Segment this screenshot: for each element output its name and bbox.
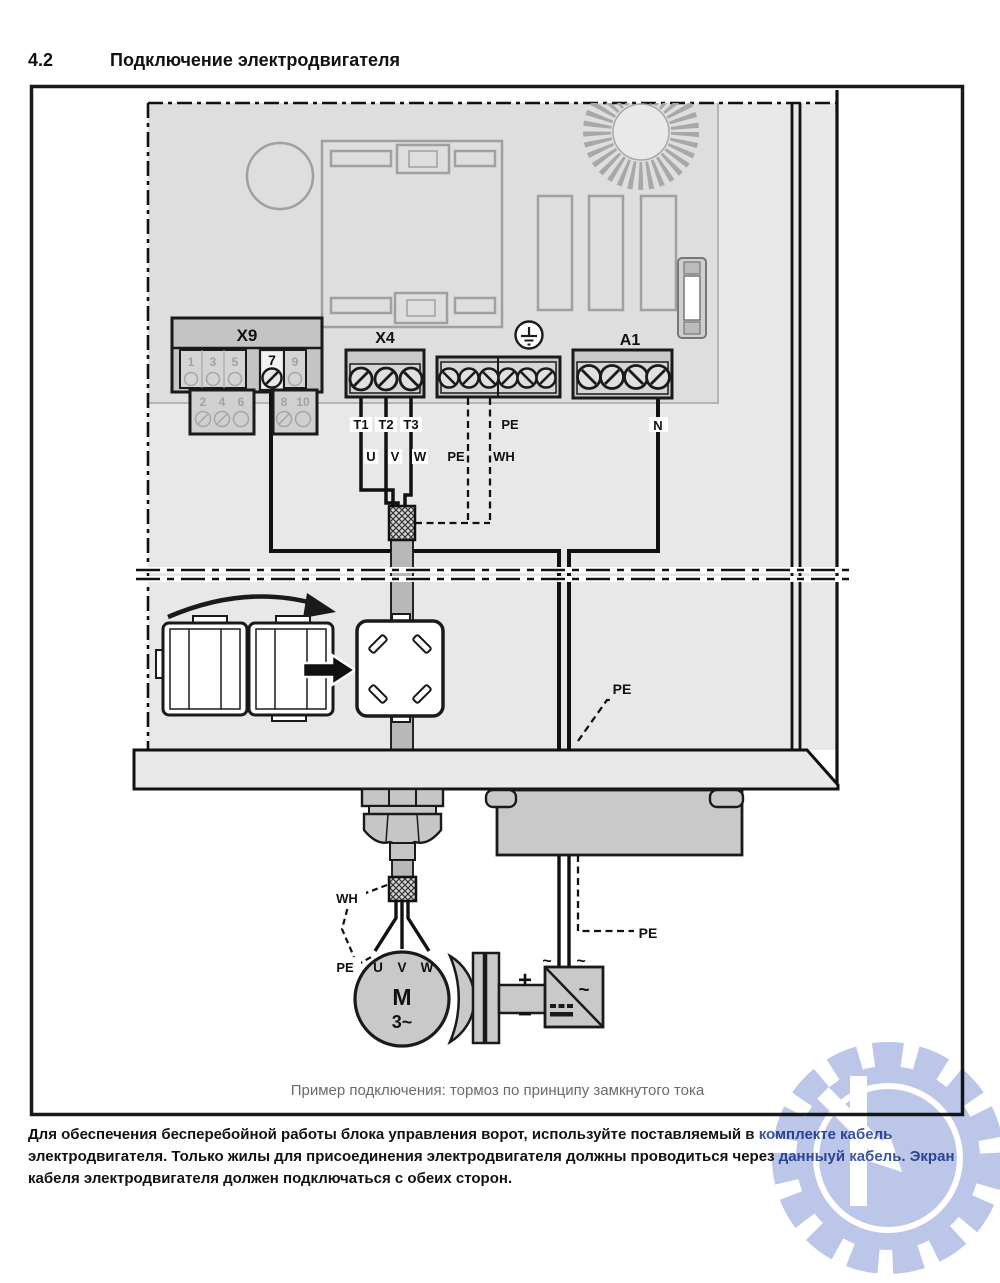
note-line-3-text: кабеля электродвигателя должен подключат… bbox=[28, 1170, 512, 1187]
clamp-closed bbox=[357, 614, 443, 722]
label-wh-row2: WH bbox=[493, 449, 515, 464]
label-t3: T3 bbox=[403, 417, 418, 432]
note-line-1-text: Для обеспечения бесперебойной работы бло… bbox=[28, 1126, 759, 1143]
note-line-2-highlight: данныуй кабель. Экран bbox=[779, 1148, 955, 1165]
ground-symbol-icon bbox=[516, 322, 543, 349]
fuse-holder-icon bbox=[678, 258, 706, 338]
label-pe-lower-right: PE bbox=[639, 925, 658, 941]
x9-terminal-3: 3 bbox=[210, 355, 217, 369]
mounting-box bbox=[486, 790, 743, 855]
cable-shield-upper bbox=[389, 506, 415, 540]
note-line-1-highlight: комплекте кабель bbox=[759, 1126, 893, 1143]
x9-terminal-7: 7 bbox=[268, 352, 276, 368]
motor-u: U bbox=[373, 960, 383, 975]
x9-terminal-10: 10 bbox=[296, 395, 310, 409]
enclosure-bottom-wall bbox=[134, 750, 838, 789]
label-u: U bbox=[366, 449, 375, 464]
label-plus: + bbox=[518, 967, 532, 994]
motor-w: W bbox=[421, 960, 434, 975]
label-w: W bbox=[414, 449, 427, 464]
x9-terminal-1: 1 bbox=[188, 355, 195, 369]
label-pe-row1: PE bbox=[501, 417, 519, 432]
label-pe-row2: PE bbox=[447, 449, 465, 464]
label-pe-motor: PE bbox=[336, 960, 354, 975]
section-number: 4.2 bbox=[28, 50, 110, 71]
label-pe-mid: PE bbox=[613, 681, 632, 697]
x9-terminal-2: 2 bbox=[200, 395, 207, 409]
motor-phase: 3~ bbox=[392, 1012, 413, 1032]
figure-caption: Пример подключения: тормоз по принципу з… bbox=[31, 1082, 964, 1099]
manual-page: { "header": { "section": "4.2", "title":… bbox=[0, 0, 1000, 1250]
wiring-diagram: X9 1 3 5 7 9 2 4 6 8 10 X4 bbox=[0, 0, 1000, 1250]
x4-label: X4 bbox=[375, 330, 395, 347]
motor-cable-lower bbox=[392, 860, 413, 878]
a1-label: A1 bbox=[620, 332, 641, 349]
label-t2: T2 bbox=[378, 417, 393, 432]
note-paragraph: Для обеспечения бесперебойной работы бло… bbox=[28, 1124, 988, 1190]
x9-terminal-8: 8 bbox=[281, 395, 288, 409]
label-t1: T1 bbox=[353, 417, 368, 432]
label-v: V bbox=[391, 449, 400, 464]
label-n: N bbox=[653, 418, 662, 433]
note-line-2: электродвигателя. Только жилы для присое… bbox=[28, 1146, 988, 1168]
cable-shield-lower bbox=[389, 877, 416, 901]
x9-terminal-6: 6 bbox=[238, 395, 245, 409]
page-title: Подключение электродвигателя bbox=[110, 50, 400, 71]
motor-m: M bbox=[392, 984, 411, 1010]
label-minus: − bbox=[518, 1001, 532, 1028]
note-line-1: Для обеспечения бесперебойной работы бло… bbox=[28, 1124, 988, 1146]
motor: U V W M 3~ bbox=[355, 952, 449, 1046]
x9-label: X9 bbox=[237, 326, 258, 345]
motor-v: V bbox=[397, 960, 406, 975]
label-wh-lower: WH bbox=[336, 891, 358, 906]
note-line-3: кабеля электродвигателя должен подключат… bbox=[28, 1168, 988, 1190]
label-ac-inside: ~ bbox=[578, 980, 589, 1001]
clamp-open-left bbox=[156, 616, 247, 715]
x9-terminal-4: 4 bbox=[219, 395, 226, 409]
section-header: 4.2 Подключение электродвигателя bbox=[28, 50, 968, 71]
x9-terminal-9: 9 bbox=[292, 355, 299, 369]
terminal-block-x9: X9 1 3 5 7 9 2 4 6 8 10 bbox=[172, 318, 322, 434]
x9-terminal-5: 5 bbox=[232, 355, 239, 369]
note-line-2-text: электродвигателя. Только жилы для присое… bbox=[28, 1148, 779, 1165]
